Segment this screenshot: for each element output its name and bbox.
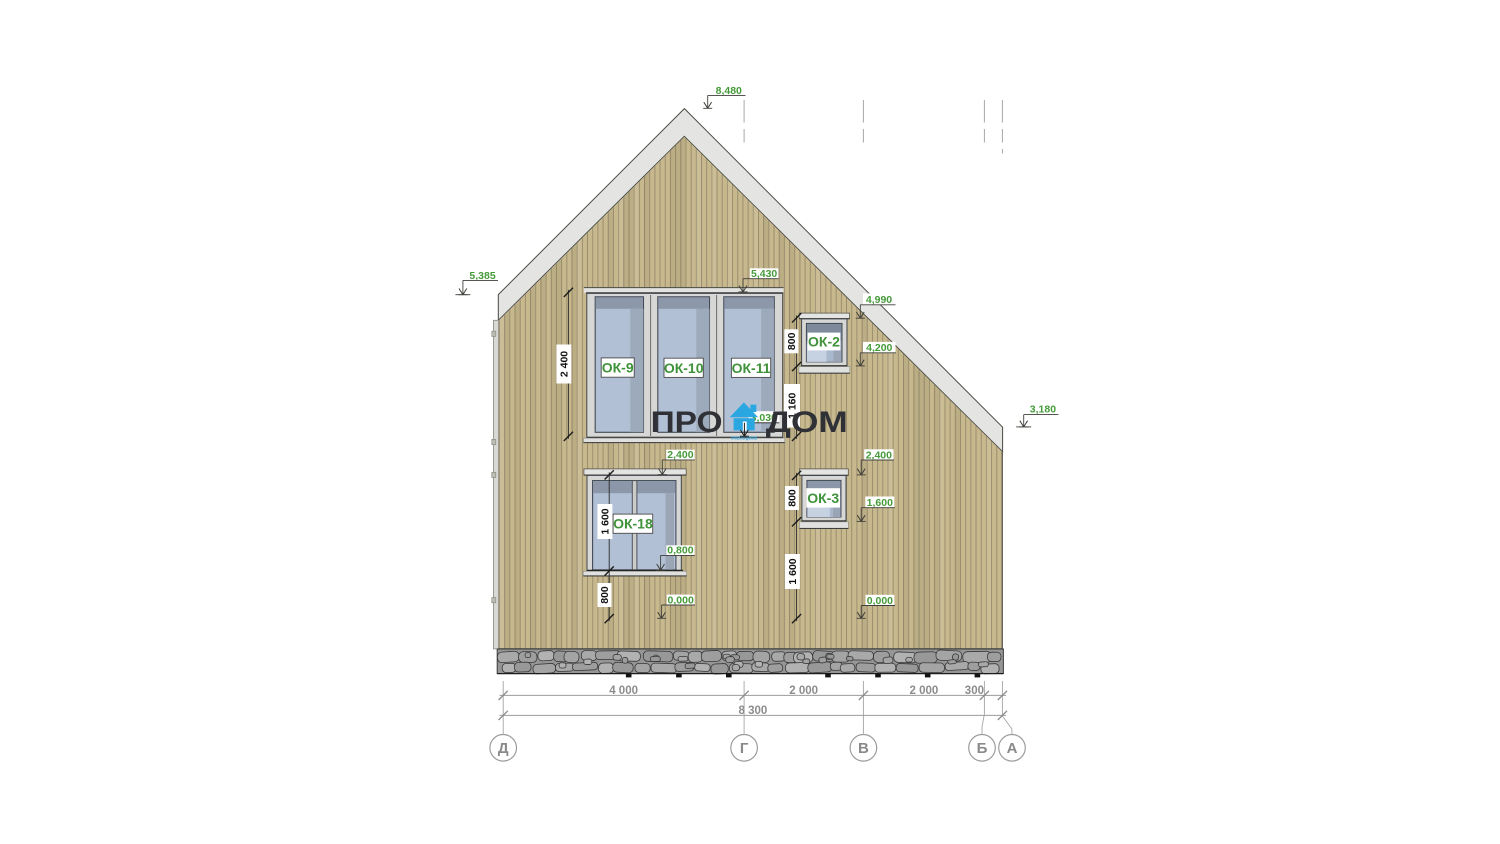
svg-text:ПРО: ПРО xyxy=(651,406,723,439)
svg-text:3,180: 3,180 xyxy=(1030,403,1056,415)
svg-text:ОК-10: ОК-10 xyxy=(664,360,704,376)
svg-text:1 600: 1 600 xyxy=(600,508,612,534)
svg-text:2,400: 2,400 xyxy=(866,449,892,461)
svg-text:Б: Б xyxy=(977,740,988,757)
svg-text:2 400: 2 400 xyxy=(559,351,571,377)
svg-text:ОК-3: ОК-3 xyxy=(807,490,839,506)
svg-text:В: В xyxy=(858,740,869,757)
svg-text:0,000: 0,000 xyxy=(668,594,694,606)
svg-text:800: 800 xyxy=(787,489,799,507)
svg-text:4,990: 4,990 xyxy=(866,294,892,306)
svg-text:8 300: 8 300 xyxy=(739,705,768,717)
svg-text:ДОМ: ДОМ xyxy=(766,406,848,439)
svg-text:300: 300 xyxy=(965,685,984,697)
svg-text:ОК-18: ОК-18 xyxy=(613,516,653,532)
svg-text:1 600: 1 600 xyxy=(787,558,799,584)
svg-text:ОК-9: ОК-9 xyxy=(602,360,634,376)
svg-text:2 000: 2 000 xyxy=(789,685,818,697)
svg-text:0,000: 0,000 xyxy=(867,595,893,607)
svg-text:0,800: 0,800 xyxy=(667,545,693,557)
svg-text:800: 800 xyxy=(599,586,611,604)
svg-text:ОК-2: ОК-2 xyxy=(808,334,840,350)
svg-text:А: А xyxy=(1007,740,1018,757)
svg-text:Г: Г xyxy=(740,740,749,757)
svg-text:1,600: 1,600 xyxy=(867,497,893,509)
svg-text:800: 800 xyxy=(786,332,798,350)
svg-text:ОК-11: ОК-11 xyxy=(732,360,771,376)
svg-text:Д: Д xyxy=(498,740,509,757)
svg-text:2 000: 2 000 xyxy=(910,685,939,697)
svg-text:4 000: 4 000 xyxy=(609,685,638,697)
svg-text:2,400: 2,400 xyxy=(667,449,693,461)
svg-text:4,200: 4,200 xyxy=(866,342,892,354)
